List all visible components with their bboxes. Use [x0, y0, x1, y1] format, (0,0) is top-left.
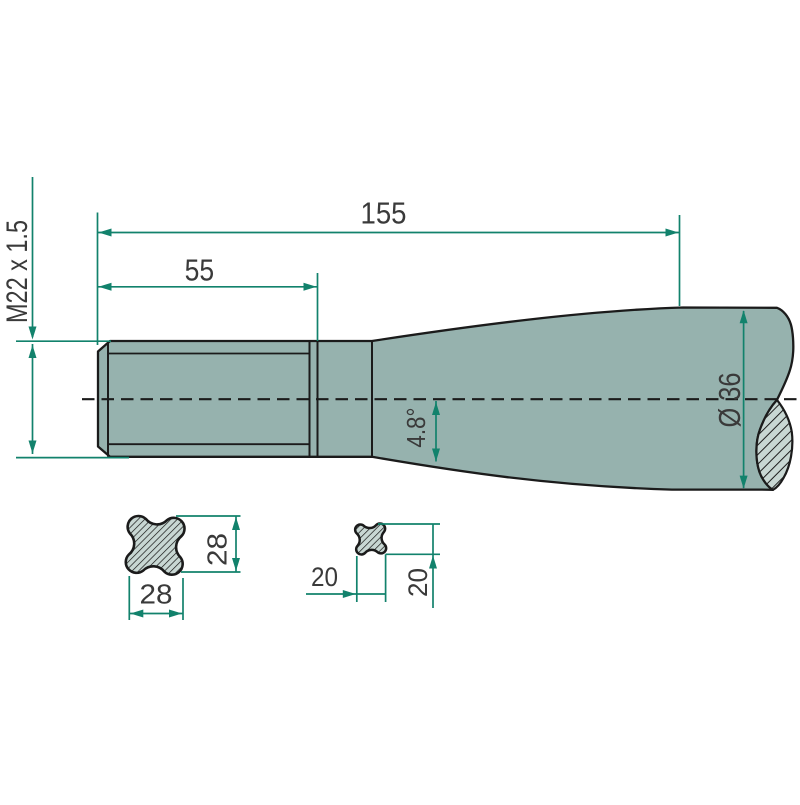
- svg-text:Ø 36: Ø 36: [712, 373, 747, 428]
- svg-text:28: 28: [140, 578, 173, 609]
- svg-text:55: 55: [185, 252, 215, 287]
- svg-text:28: 28: [202, 533, 233, 566]
- svg-text:20: 20: [403, 568, 433, 597]
- svg-text:20: 20: [311, 562, 338, 592]
- svg-text:155: 155: [361, 195, 407, 230]
- svg-text:4.8°: 4.8°: [401, 408, 431, 448]
- svg-text:M22 x 1.5: M22 x 1.5: [1, 220, 34, 323]
